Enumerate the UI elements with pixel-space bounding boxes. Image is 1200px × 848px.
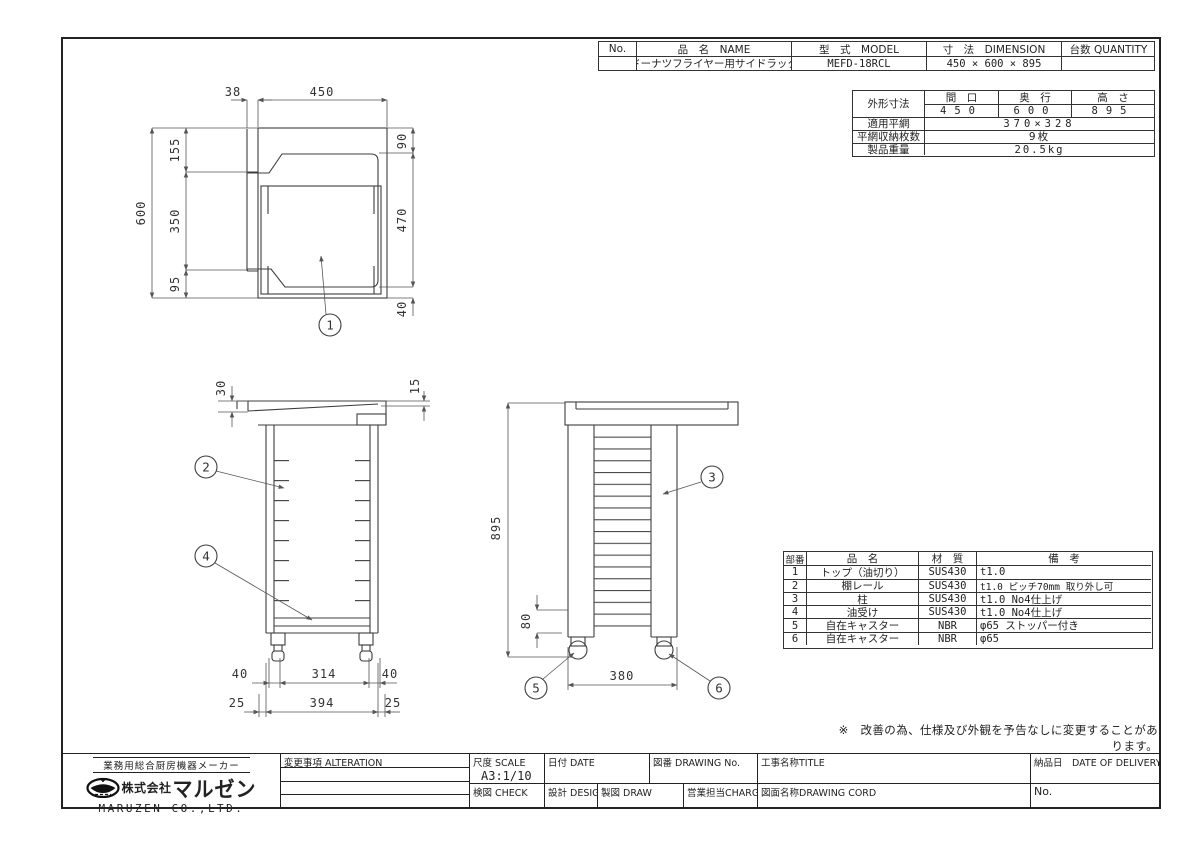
parts-row-name: 柱 — [806, 592, 918, 605]
company-block: 業務用総合厨房機器メーカー 株式会社 マルゼン MARUZEN CO.,LTD. — [63, 754, 280, 807]
parts-row-material: NBR — [918, 618, 976, 631]
side-view — [565, 402, 738, 659]
parts-row-material: SUS430 — [918, 565, 976, 578]
dim-label: 350 — [168, 209, 182, 234]
spec-value-height: 895 — [1071, 104, 1154, 117]
drawing-no-cell: 図番 DRAWING No. — [649, 754, 757, 783]
spec-table: 外形寸法 間 口 奥 行 高 さ 450 600 895 適用平網 370×32… — [852, 90, 1155, 157]
info-header-model: 型 式 MODEL — [791, 42, 926, 56]
plan-view — [247, 128, 387, 298]
spec-header-height: 高 さ — [1071, 91, 1154, 104]
parts-row-remarks: t1.0 No4仕上げ — [976, 592, 1151, 605]
parts-row-remarks: t1.0 — [976, 565, 1151, 578]
balloon-2: 2 — [195, 456, 217, 478]
parts-header-material: 材 質 — [918, 552, 976, 565]
dim-label: 80 — [519, 613, 533, 629]
spec-value-depth: 600 — [998, 104, 1071, 117]
dim-label: 314 — [312, 667, 337, 681]
dim-label: 25 — [229, 696, 245, 710]
alteration-row — [281, 767, 469, 780]
no-cell: No. — [1030, 784, 1159, 807]
info-header-no: No. — [599, 42, 636, 56]
parts-row-no: 3 — [784, 592, 806, 605]
parts-header-no: 部番 — [784, 552, 806, 565]
dim-label: 600 — [134, 201, 148, 226]
spec-mesh-label: 適用平網 — [853, 117, 924, 130]
parts-row-name: 棚レール — [806, 579, 918, 592]
dim-label: 40 — [395, 301, 409, 317]
balloon-4: 4 — [195, 545, 217, 567]
parts-row-material: SUS430 — [918, 605, 976, 618]
dim-label: 155 — [168, 138, 182, 163]
drawing-sheet: 38 450 600 155 350 95 90 470 40 1 — [0, 0, 1200, 848]
svg-text:5: 5 — [532, 681, 540, 696]
scale-cell: 尺度 SCALE A3:1/10 — [470, 754, 544, 783]
parts-row-no: 1 — [784, 565, 806, 578]
parts-row-remarks: t1.0 ピッチ70mm 取り外し可 — [976, 579, 1151, 592]
delivery-date-cell: 納品日 DATE OF DELIVERY — [1030, 754, 1159, 783]
parts-header-remarks: 備 考 — [976, 552, 1151, 565]
spec-count-label: 平網収納枚数 — [853, 130, 924, 143]
dim-label: 450 — [310, 85, 335, 99]
spec-weight-label: 製品重量 — [853, 143, 924, 156]
parts-row-name: 自在キャスター — [806, 632, 918, 645]
parts-row-name: 油受け — [806, 605, 918, 618]
draw-cell: 製図 DRAW — [597, 784, 683, 807]
dim-label: 895 — [489, 516, 503, 541]
dim-label: 40 — [382, 667, 398, 681]
dim-label: 394 — [310, 696, 335, 710]
svg-text:3: 3 — [708, 470, 716, 485]
parts-row-remarks: t1.0 No4仕上げ — [976, 605, 1151, 618]
info-header-name: 品 名 NAME — [636, 42, 791, 56]
drawing-cord-cell: 図面名称DRAWING CORD — [757, 784, 1030, 807]
parts-row-no: 4 — [784, 605, 806, 618]
company-prefix: 株式会社 — [121, 779, 171, 796]
info-value-quantity — [1061, 56, 1155, 70]
alteration-row — [281, 781, 469, 794]
info-table: No. 品 名 NAME 型 式 MODEL 寸 法 DIMENSION 台数 … — [598, 41, 1155, 71]
info-header-dimension: 寸 法 DIMENSION — [926, 42, 1061, 56]
spec-mesh-value: 370×328 — [924, 117, 1154, 130]
svg-text:2: 2 — [202, 460, 210, 475]
spec-weight-value: 20.5kg — [924, 143, 1154, 156]
balloon-1: 1 — [319, 314, 341, 336]
spec-header-width: 間 口 — [924, 91, 998, 104]
info-header-quantity: 台数 QUANTITY — [1061, 42, 1155, 56]
parts-row-material: SUS430 — [918, 579, 976, 592]
alteration-label: 変更事項 ALTERATION — [281, 754, 469, 767]
spec-value-width: 450 — [924, 104, 998, 117]
info-value-model: MEFD-18RCL — [791, 56, 926, 70]
disclaimer-note: ※ 改善の為、仕様及び外観を予告なしに変更することがあります。 — [836, 722, 1158, 754]
parts-table: 部番 品 名 材 質 備 考 1 トップ（油切り） SUS430 t1.0 2 … — [783, 551, 1153, 649]
info-value-no — [599, 56, 636, 70]
check-cell: 検図 CHECK — [470, 784, 544, 807]
parts-row-material: NBR — [918, 632, 976, 645]
dim-label: 380 — [610, 669, 635, 683]
front-view — [237, 401, 386, 661]
parts-row-material: SUS430 — [918, 592, 976, 605]
dim-label: 38 — [225, 85, 241, 99]
parts-row-name: トップ（油切り） — [806, 565, 918, 578]
spec-header-depth: 奥 行 — [998, 91, 1071, 104]
scale-value: A3:1/10 — [473, 769, 544, 783]
parts-row-no: 2 — [784, 579, 806, 592]
dim-label: 15 — [408, 378, 422, 394]
dim-label: 40 — [232, 667, 248, 681]
info-value-name: ドーナツフライヤー用サイドラック — [636, 56, 791, 70]
alteration-block: 変更事項 ALTERATION — [280, 754, 469, 807]
balloon-3: 3 — [701, 466, 723, 488]
company-brand: マルゼン — [172, 772, 256, 802]
spec-outer-dim-label: 外形寸法 — [853, 91, 924, 117]
parts-row-no: 6 — [784, 632, 806, 645]
alteration-row — [281, 794, 469, 807]
svg-text:4: 4 — [202, 549, 210, 564]
maruzen-logo-icon — [86, 777, 120, 798]
svg-text:6: 6 — [715, 681, 723, 696]
parts-row-name: 自在キャスター — [806, 618, 918, 631]
title-block: 業務用総合厨房機器メーカー 株式会社 マルゼン MARUZEN CO.,LTD.… — [62, 753, 1160, 808]
charge-cell: 営業担当CHARGE — [683, 784, 757, 807]
balloon-5: 5 — [525, 677, 547, 699]
parts-row-no: 5 — [784, 618, 806, 631]
dim-label: 25 — [385, 696, 401, 710]
parts-row-remarks: φ65 — [976, 632, 1151, 645]
dim-label: 90 — [395, 133, 409, 149]
dim-label: 30 — [214, 380, 228, 396]
spec-count-value: 9枚 — [924, 130, 1154, 143]
title-cell: 工事名称TITLE — [757, 754, 1030, 783]
info-value-dimension: 450 × 600 × 895 — [926, 56, 1061, 70]
date-cell: 日付 DATE — [544, 754, 649, 783]
design-cell: 設計 DESIGN — [544, 784, 597, 807]
parts-header-name: 品 名 — [806, 552, 918, 565]
balloon-6: 6 — [708, 677, 730, 699]
company-tagline: 業務用総合厨房機器メーカー — [93, 757, 250, 773]
dim-label: 470 — [395, 208, 409, 233]
dim-label: 95 — [168, 276, 182, 292]
parts-row-remarks: φ65 ストッパー付き — [976, 618, 1151, 631]
company-name-en: MARUZEN CO.,LTD. — [98, 802, 244, 815]
svg-text:1: 1 — [326, 318, 334, 333]
